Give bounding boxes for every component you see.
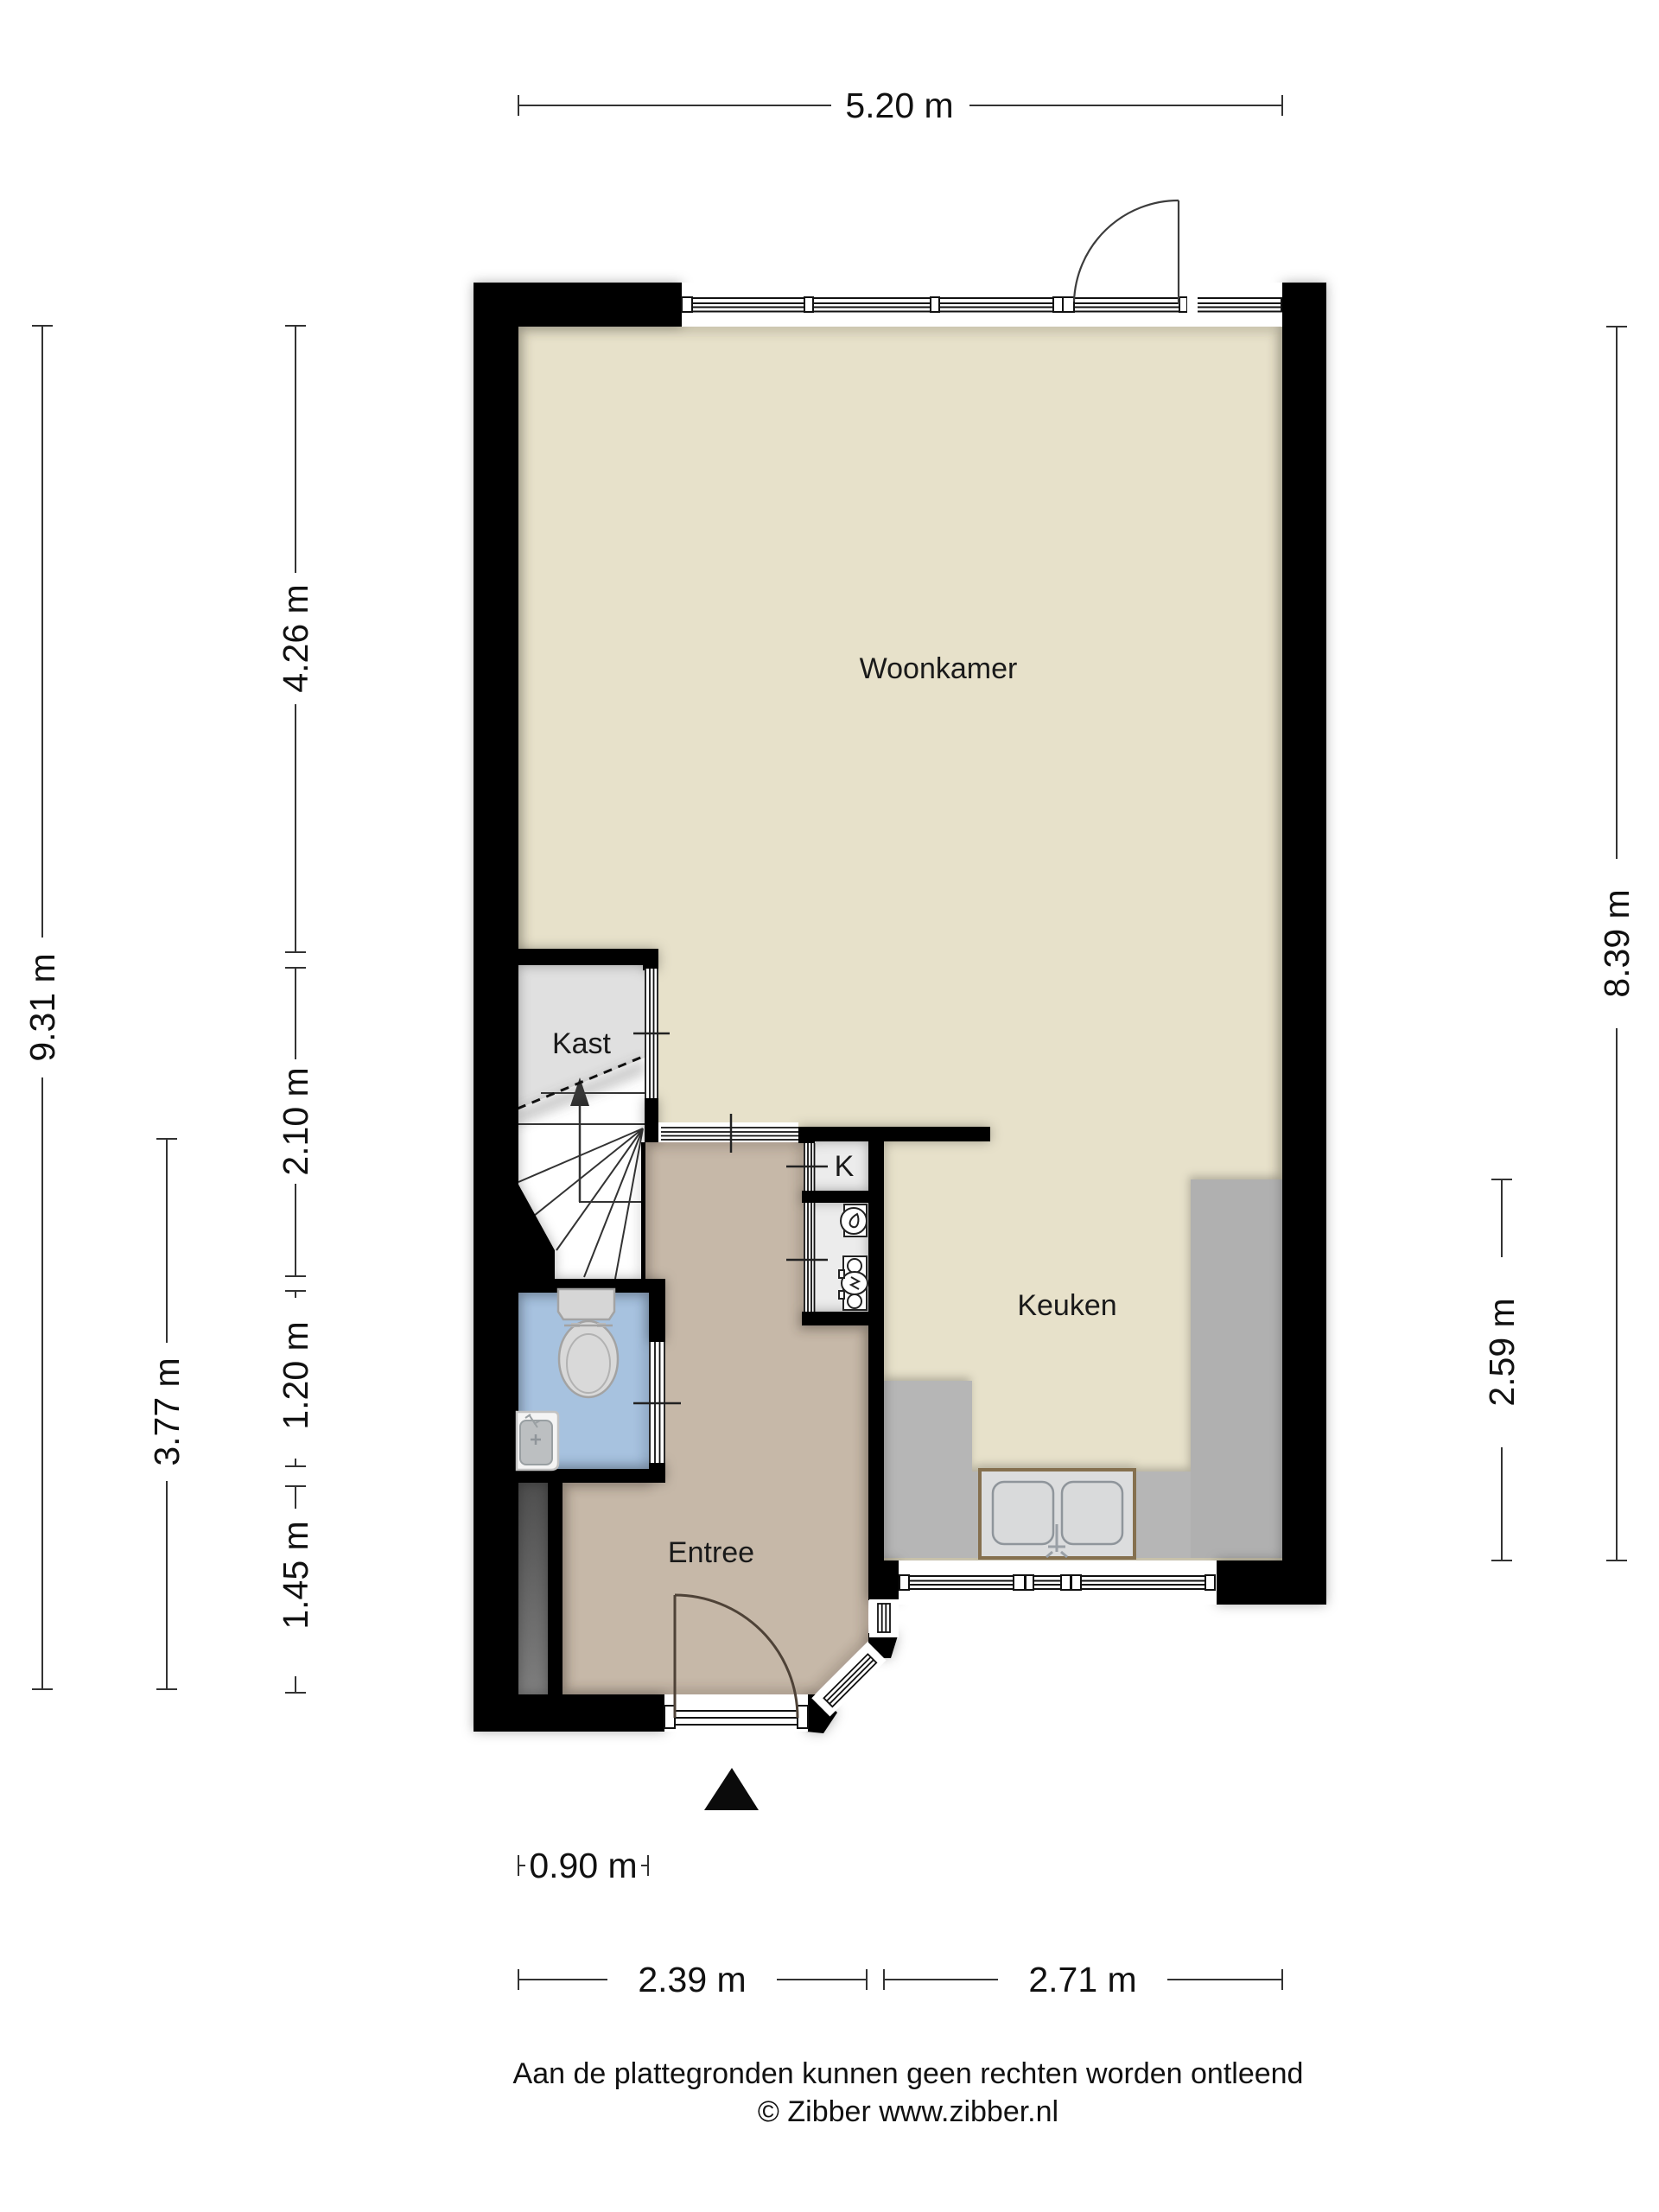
svg-text:4.26 m: 4.26 m — [276, 584, 315, 692]
svg-text:1.20 m: 1.20 m — [276, 1321, 315, 1429]
svg-text:2.39 m: 2.39 m — [638, 1960, 746, 1999]
svg-text:2.71 m: 2.71 m — [1028, 1960, 1136, 1999]
svg-text:0.90 m: 0.90 m — [529, 1846, 637, 1885]
svg-text:© Zibber www.zibber.nl: © Zibber www.zibber.nl — [758, 2095, 1058, 2128]
svg-text:2.59 m: 2.59 m — [1482, 1298, 1522, 1406]
svg-text:Kast: Kast — [552, 1027, 612, 1060]
svg-text:8.39 m: 8.39 m — [1597, 889, 1637, 997]
svg-text:9.31 m: 9.31 m — [22, 953, 62, 1061]
svg-text:5.20 m: 5.20 m — [845, 86, 953, 125]
svg-text:2.10 m: 2.10 m — [276, 1067, 315, 1175]
svg-text:Entree: Entree — [668, 1536, 754, 1569]
svg-text:Woonkamer: Woonkamer — [860, 652, 1018, 685]
svg-text:K: K — [835, 1150, 855, 1183]
svg-text:1.45 m: 1.45 m — [276, 1521, 315, 1629]
svg-text:Keuken: Keuken — [1017, 1289, 1116, 1322]
svg-text:Aan de plattegronden kunnen ge: Aan de plattegronden kunnen geen rechten… — [513, 2057, 1304, 2090]
svg-text:3.77 m: 3.77 m — [147, 1357, 187, 1465]
